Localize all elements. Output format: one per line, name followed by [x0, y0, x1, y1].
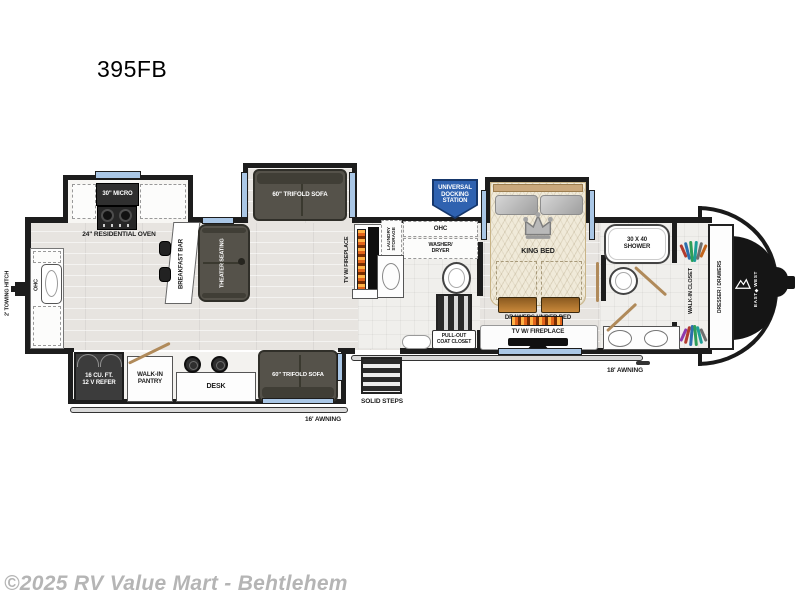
living-fireplace — [357, 229, 366, 291]
crown-icon — [519, 210, 557, 242]
desk-stool-2 — [211, 356, 228, 373]
kitchen-slide-window — [95, 171, 141, 179]
sofa-slide-window-right — [349, 172, 356, 218]
brand-logo-text: EAST◆WEST — [750, 256, 761, 322]
bed-window-left — [481, 190, 487, 240]
bar-stool-1 — [159, 241, 171, 256]
wall-bed-frontbath-divider — [601, 255, 606, 301]
rear-counter-ohc-top — [33, 251, 61, 263]
microwave-label: 30" MICRO — [96, 183, 139, 206]
vanity-sink-left — [608, 330, 632, 347]
bottom-sofa-window-right — [337, 353, 343, 381]
rear-ohc-label: OHC — [32, 270, 41, 300]
trifold-sofa-top-label: 60" TRIFOLD SOFA — [253, 183, 347, 207]
bedroom-stairs — [436, 294, 472, 334]
pantry-label: WALK-INPANTRY — [127, 356, 173, 402]
watermark: ©2025 RV Value Mart - Behtlehem — [4, 570, 524, 598]
rear-hitch-nub — [15, 282, 26, 296]
shower-label: 30 X 40SHOWER — [604, 228, 670, 260]
solid-steps-label: SOLID STEPS — [352, 397, 412, 407]
awning-right-endcap — [636, 361, 650, 365]
stove-burner-right — [119, 209, 132, 222]
closet-hangers-top — [677, 238, 709, 264]
bed-drawer-right — [541, 297, 580, 313]
washer-dryer-label: WASHER/DRYER — [403, 238, 478, 259]
rear-counter-ohc-bottom — [33, 306, 61, 346]
king-bed-label: KING BED — [509, 246, 567, 257]
sofa-slide-window-left — [241, 172, 248, 218]
desk-label: DESK — [176, 372, 256, 402]
towing-hitch-label: 2' TOWING HITCH — [2, 248, 13, 338]
docking-station-label: UNIVERSAL DOCKING STATION — [432, 181, 478, 209]
king-pin-nub — [786, 276, 795, 289]
walk-in-closet-label: WALK-IN CLOSET — [684, 260, 698, 322]
laundry-storage: LAUNDRY STORAGE — [381, 220, 402, 257]
stove-burner-left — [101, 209, 114, 222]
solid-steps — [361, 357, 402, 394]
bed-drawer-left — [498, 297, 537, 313]
theater-seating-label: THEATER SEATING — [214, 234, 231, 292]
half-wall-cabinet — [352, 289, 378, 299]
awning-left-bar — [70, 407, 348, 413]
laundry-label-2: STORAGE — [392, 227, 397, 251]
brand-mountain-icon — [735, 277, 751, 290]
floorplan-page: 395FB EAST◆WEST 30" MICRO 60" TRIFOLD SO… — [0, 0, 800, 600]
page-title: 395FB — [97, 56, 227, 84]
laundry-label-1: LAUNDRY — [387, 227, 392, 250]
bedroom-fireplace — [511, 316, 563, 326]
mid-toilet-seat — [448, 268, 465, 288]
bath-ohc-label: OHC — [403, 221, 478, 237]
bedroom-tv-label: TV W/ FIREPLACE — [495, 327, 581, 337]
bedroom-pocket-door — [596, 262, 599, 302]
bedroom-tv-bar — [508, 338, 568, 346]
breakfast-bar-label: BREAKFAST BAR — [172, 228, 192, 300]
awning-right-label: 18' AWNING — [598, 366, 652, 376]
bar-stool-2 — [159, 267, 171, 282]
closet-hangers-bottom — [677, 322, 709, 348]
galley-window — [202, 217, 234, 224]
bedroom-bottom-window — [498, 348, 582, 355]
fridge-label: 16 CU. FT.12 V REFER — [74, 368, 124, 392]
bed-drawer-outline-right — [541, 261, 582, 300]
entry-door — [402, 335, 431, 349]
bed-window-right — [589, 190, 595, 240]
stove-knobs — [103, 224, 133, 227]
awning-left-label: 16' AWNING — [296, 415, 350, 425]
trifold-sofa-bottom-label: 60" TRIFOLD SOFA — [258, 364, 338, 386]
vanity-sink-right — [644, 330, 668, 347]
kitchen-counter-left — [72, 184, 96, 219]
bath-vanity-sink — [382, 263, 400, 290]
coat-closet-label: PULL-OUTCOAT CLOSET — [432, 330, 476, 349]
kitchen-sink-basin — [45, 270, 58, 297]
wall-top-4 — [585, 217, 712, 223]
front-toilet-seat — [615, 272, 632, 290]
kitchen-counter-right — [140, 184, 186, 219]
bed-headboard — [493, 184, 583, 192]
bottom-sofa-window-rear — [262, 398, 334, 404]
living-tv-label: TV W/ FIREPLACE — [342, 230, 352, 290]
oven-label: 24" RESIDENTIAL OVEN — [78, 229, 160, 240]
desk-stool-1 — [184, 356, 201, 373]
bed-drawer-outline-left — [496, 261, 537, 300]
wall-top-1 — [25, 217, 68, 223]
king-pin-hitch — [764, 267, 788, 297]
dresser-label: DRESSER / DRAWERS — [714, 230, 728, 344]
